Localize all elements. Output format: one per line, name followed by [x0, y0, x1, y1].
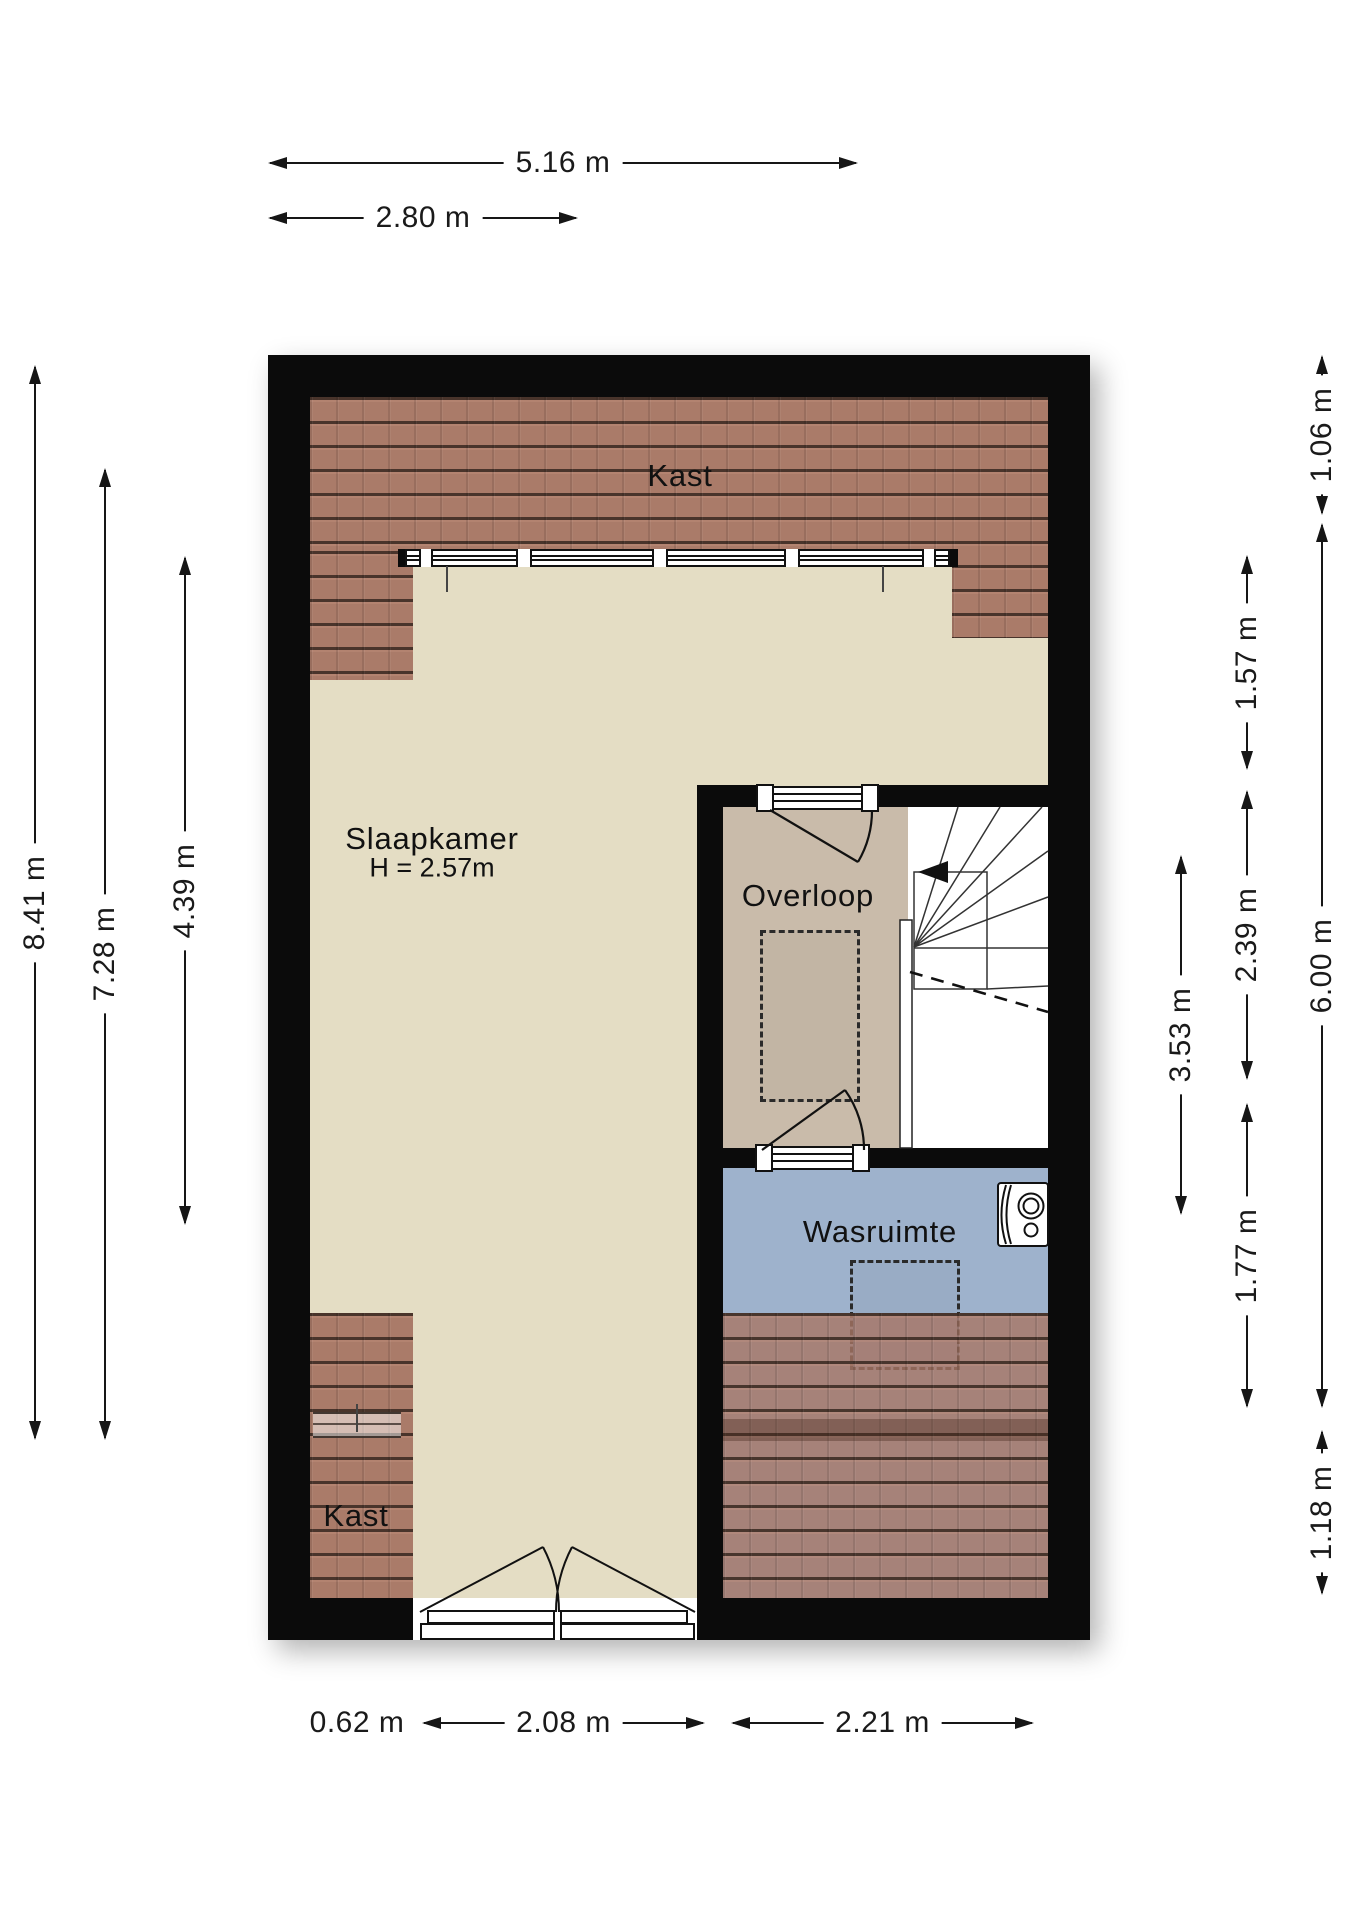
dimension-label: 5.16 m [504, 146, 623, 180]
room-label-slaapkamer-height: H = 2.57m [369, 853, 494, 884]
overloop-void-dashed-outline [760, 930, 860, 1102]
dimension-left-728: 7.28 m [93, 468, 117, 1440]
door-jamb [755, 1144, 773, 1172]
window-mullion [419, 549, 433, 567]
window-mullion [652, 549, 668, 567]
roof-tiles-top-left-column [310, 551, 413, 680]
dimension-label: 3.53 m [1164, 976, 1198, 1095]
window-mullion [784, 549, 800, 567]
dimension-top-width-full: 5.16 m [268, 151, 858, 175]
wall-wasruimte-top-left [723, 1148, 758, 1168]
french-door-left-panel [420, 1623, 555, 1640]
french-door-right-leaf [560, 1610, 688, 1624]
dimension-label: 8.41 m [18, 843, 52, 962]
roof-window-strip [313, 1412, 401, 1438]
door-jamb [756, 784, 774, 812]
window-mullion [922, 549, 936, 567]
dimension-bottom-208: 2.08 m [422, 1711, 705, 1735]
roof-tiles-top-right-column [952, 397, 1048, 638]
wall-overloop-top-left [723, 785, 758, 807]
door-jamb [852, 1144, 870, 1172]
room-label-kast-top: Kast [647, 458, 712, 494]
dimension-label: 1.18 m [1305, 1453, 1339, 1572]
dimension-left-439: 4.39 m [173, 556, 197, 1225]
dimension-label: 1.57 m [1230, 603, 1264, 722]
dimension-right-157: 1.57 m [1235, 555, 1259, 770]
dimension-label: 4.39 m [168, 831, 202, 950]
dimension-left-841: 8.41 m [23, 365, 47, 1440]
dimension-label: 2.80 m [364, 201, 483, 235]
room-label-wasruimte: Wasruimte [803, 1214, 957, 1250]
dimension-label: 7.28 m [88, 895, 122, 1014]
roof-tiles-bottom-left-column [310, 1313, 413, 1598]
wall-wasruimte-top-right [868, 1148, 1048, 1168]
dimension-bottom-221: 2.21 m [731, 1711, 1034, 1735]
dimension-right-239: 2.39 m [1235, 790, 1259, 1080]
dimension-label: 6.00 m [1305, 906, 1339, 1025]
roof-ridge-line [723, 1419, 1048, 1441]
door-slaapkamer-overloop [758, 786, 877, 810]
dimension-label: 2.21 m [823, 1706, 942, 1740]
dormer-window-band [405, 549, 950, 567]
dimension-right-177: 1.77 m [1235, 1103, 1259, 1408]
dimension-right-353: 3.53 m [1169, 855, 1193, 1215]
french-door-right-panel [560, 1623, 695, 1640]
room-label-overloop: Overloop [742, 878, 874, 914]
french-door-left-leaf [427, 1610, 555, 1624]
dimension-right-600: 6.00 m [1310, 523, 1334, 1408]
floor-plan-canvas: 5.16 m 2.80 m 8.41 m 7.28 m 4.39 m 1.06 … [0, 0, 1358, 1920]
wall-overloop-top-right [877, 785, 1048, 807]
roof-tiles-bottom-right [723, 1313, 1048, 1598]
roof-tiles-top [310, 397, 952, 551]
dimension-bottom-062-label: 0.62 m [310, 1706, 405, 1740]
window-mullion [516, 549, 532, 567]
dimension-label: 1.06 m [1305, 376, 1339, 495]
wall-overloop-left [697, 785, 723, 1598]
dimension-label: 2.39 m [1230, 876, 1264, 995]
dimension-top-width-partial: 2.80 m [268, 206, 578, 230]
stairwell-floor [908, 807, 1048, 1148]
dimension-label: 1.77 m [1230, 1196, 1264, 1315]
door-jamb [861, 784, 879, 812]
room-label-kast-bottom: Kast [323, 1498, 388, 1534]
dimension-right-106: 1.06 m [1310, 355, 1334, 515]
dimension-label: 2.08 m [504, 1706, 623, 1740]
window-band-right-stub [950, 549, 958, 567]
dimension-right-118: 1.18 m [1310, 1430, 1334, 1595]
